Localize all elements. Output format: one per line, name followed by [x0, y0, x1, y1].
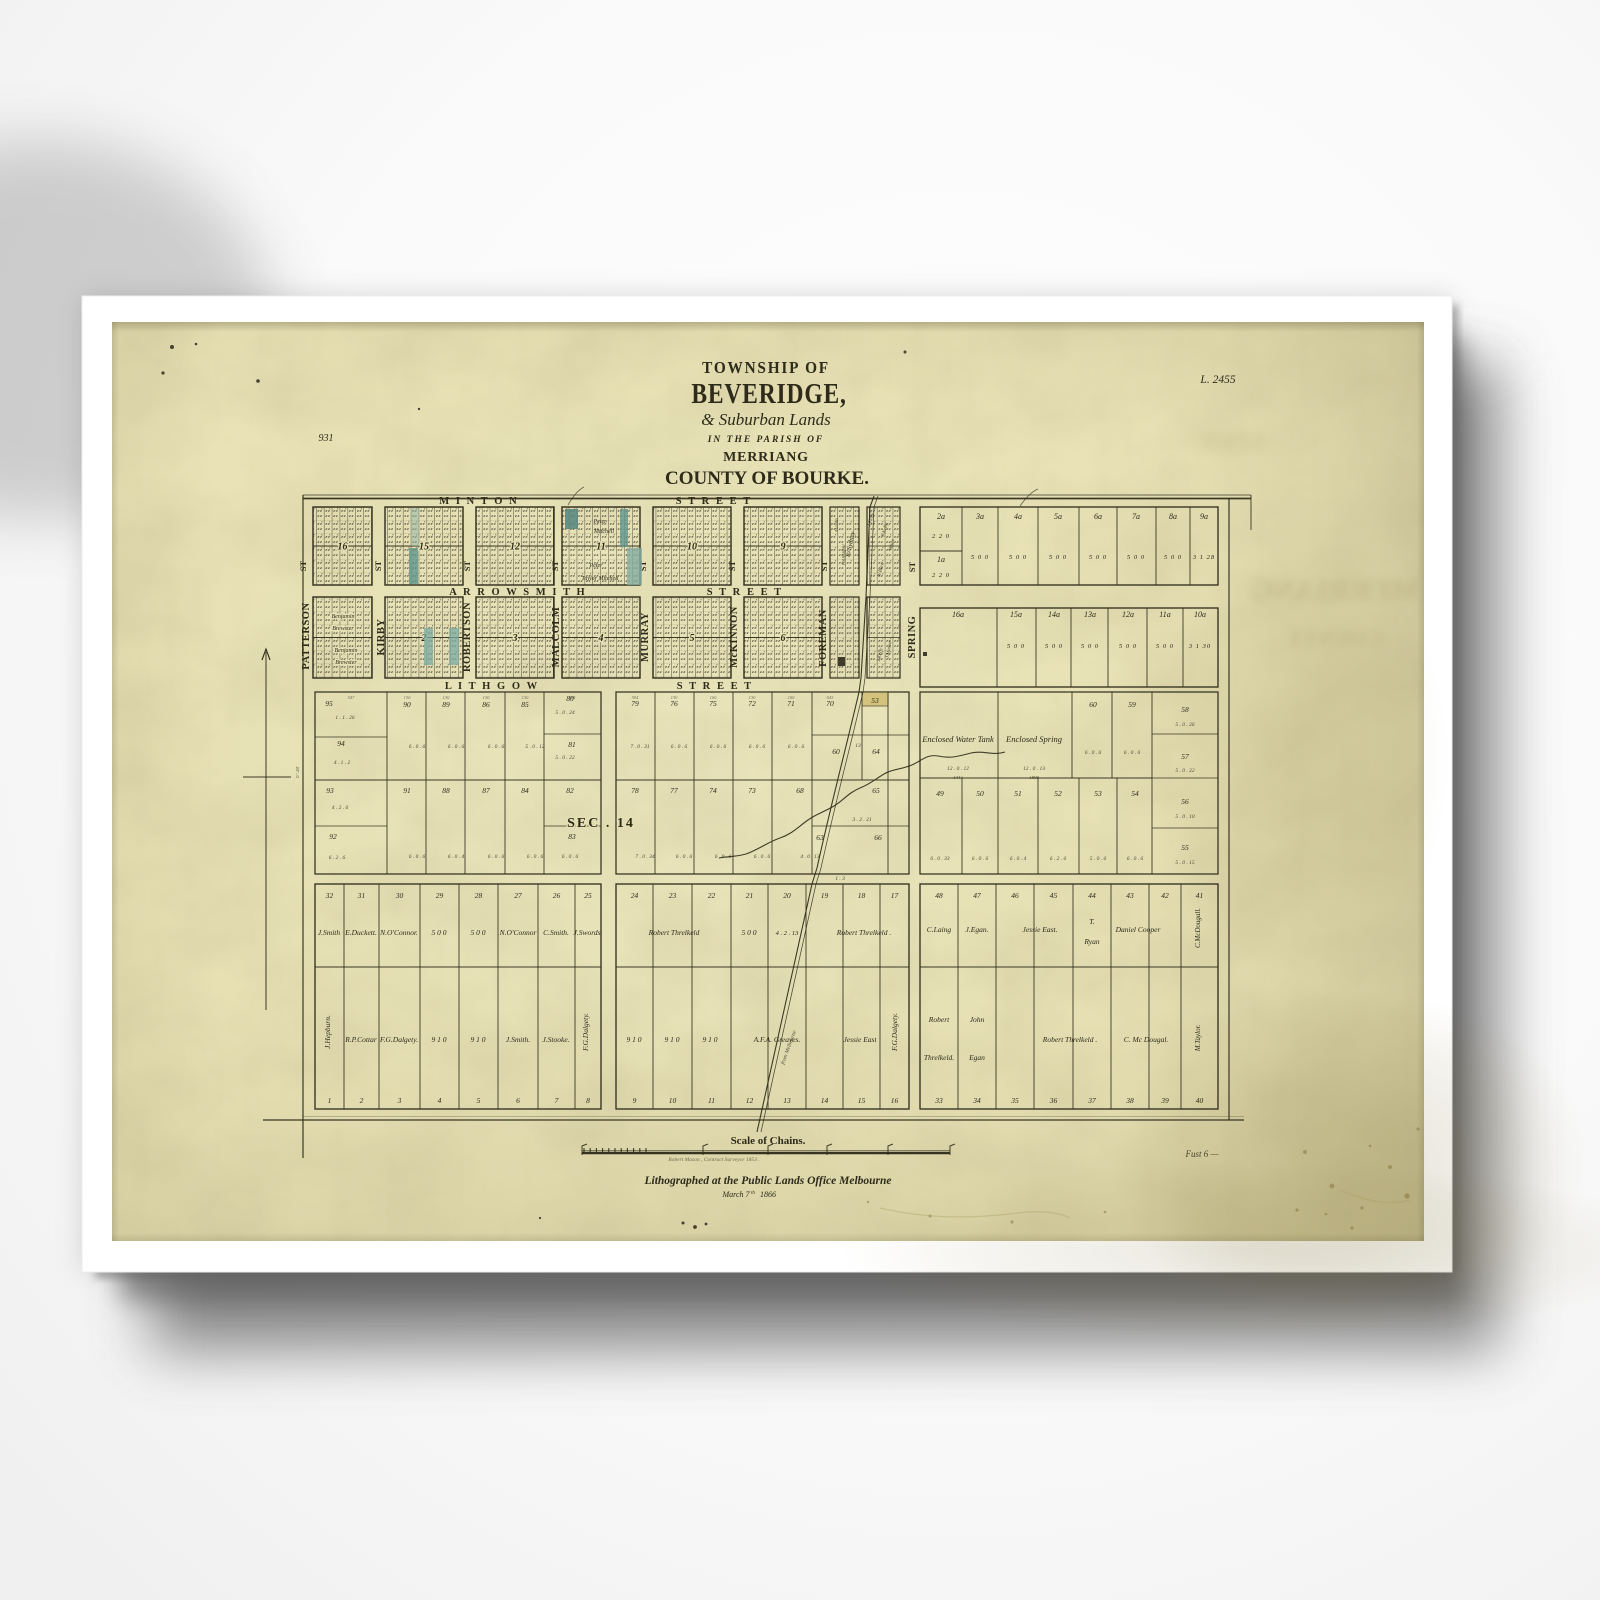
svg-text:MERRIANG: MERRIANG [1250, 574, 1420, 607]
svg-text:7 . 0 . 31: 7 . 0 . 31 [630, 744, 650, 750]
svg-text:6 . 0 . 6: 6 . 0 . 6 [448, 744, 465, 750]
svg-text:2 2 0: 2 2 0 [932, 572, 950, 579]
svg-text:5 . 0 . 15: 5 . 0 . 15 [1175, 860, 1195, 866]
svg-text:75: 75 [709, 699, 717, 708]
svg-text:5 . 0 . 22: 5 . 0 . 22 [1175, 768, 1195, 774]
svg-text:39: 39 [1160, 1096, 1169, 1105]
svg-text:643: 643 [827, 695, 835, 700]
svg-text:29: 29 [436, 891, 444, 900]
svg-text:984: 984 [569, 695, 577, 700]
svg-text:6 . 0 . 6: 6 . 0 . 6 [749, 744, 766, 750]
svg-text:8: 8 [586, 1096, 590, 1105]
svg-text:M.Taylor.: M.Taylor. [1194, 1024, 1202, 1052]
svg-text:130: 130 [671, 695, 679, 700]
svg-text:66: 66 [874, 833, 882, 842]
svg-text:71: 71 [787, 699, 795, 708]
svg-text:54: 54 [1131, 789, 1139, 798]
svg-text:11: 11 [596, 542, 605, 553]
svg-text:3 1 28: 3 1 28 [1192, 554, 1215, 561]
svg-text:ST: ST [907, 561, 917, 572]
svg-text:5: 5 [690, 633, 695, 644]
svg-text:R.P.Cottar: R.P.Cottar [344, 1035, 377, 1044]
svg-text:21: 21 [746, 891, 754, 900]
svg-text:41: 41 [1196, 891, 1204, 900]
svg-text:40: 40 [1196, 1096, 1204, 1105]
svg-text:Benjamin: Benjamin [335, 648, 358, 654]
svg-text:BEVERIDGE,: BEVERIDGE, [691, 378, 846, 409]
svg-text:94: 94 [337, 739, 345, 748]
svg-text:Fust 6 —: Fust 6 — [1184, 1149, 1219, 1159]
svg-text:594: 594 [632, 695, 640, 700]
svg-text:100: 100 [710, 695, 718, 700]
svg-text:13a: 13a [1084, 610, 1096, 619]
svg-text:9: 9 [781, 542, 786, 553]
svg-text:5a: 5a [1054, 512, 1062, 521]
svg-text:E.Duckett.: E.Duckett. [344, 928, 377, 937]
svg-text:6 . 0 . 6: 6 . 0 . 6 [409, 744, 426, 750]
svg-text:8a: 8a [1169, 512, 1177, 521]
svg-text:55: 55 [1181, 843, 1189, 852]
svg-text:Taylor Mitchell: Taylor Mitchell [582, 576, 619, 582]
svg-text:Mason: Mason [835, 518, 840, 533]
svg-text:1: 1 [328, 1096, 332, 1105]
svg-text:2 2 0: 2 2 0 [932, 533, 950, 540]
svg-text:L I T H G O W: L I T H G O W [445, 681, 539, 692]
svg-text:24: 24 [631, 891, 639, 900]
svg-text:MERRIANG: MERRIANG [723, 450, 809, 465]
svg-text:McKINNON: McKINNON [729, 606, 740, 668]
svg-text:16a: 16a [952, 610, 964, 619]
svg-text:14: 14 [821, 1096, 829, 1105]
svg-text:22: 22 [708, 891, 716, 900]
svg-text:6a: 6a [1094, 512, 1102, 521]
svg-text:& Suburban Lands: & Suburban Lands [701, 410, 831, 429]
svg-text:16: 16 [338, 542, 348, 553]
svg-text:4 . 2 . 6: 4 . 2 . 6 [332, 804, 349, 811]
svg-text:58: 58 [1181, 705, 1189, 714]
svg-text:30: 30 [395, 891, 404, 900]
svg-text:68: 68 [796, 786, 804, 795]
svg-text:5 0 0: 5 0 0 [1009, 554, 1027, 561]
svg-text:15: 15 [858, 1096, 866, 1105]
svg-text:9: 9 [633, 1096, 637, 1105]
svg-text:6: 6 [781, 633, 786, 644]
svg-text:10: 10 [687, 542, 697, 553]
svg-text:C.McDougall.: C.McDougall. [1194, 908, 1202, 948]
svg-text:COUNTY: COUNTY [1287, 626, 1382, 651]
svg-text:N.O'Connor: N.O'Connor [499, 928, 537, 937]
svg-text:25: 25 [584, 891, 592, 900]
svg-text:84: 84 [521, 786, 529, 795]
svg-text:J.Swords.: J.Swords. [574, 928, 603, 937]
svg-text:14a: 14a [1048, 610, 1060, 619]
svg-text:4: 4 [598, 633, 604, 644]
svg-text:38: 38 [1125, 1096, 1134, 1105]
svg-text:6 . 2 . 6: 6 . 2 . 6 [329, 855, 346, 861]
svg-text:44: 44 [1088, 891, 1096, 900]
svg-text:3 . 2 . 21: 3 . 2 . 21 [851, 817, 872, 823]
svg-text:47: 47 [973, 891, 981, 900]
svg-text:5 . 0 . 22: 5 . 0 . 22 [555, 755, 575, 761]
svg-text:12a: 12a [1122, 610, 1134, 619]
svg-text:COUNTY OF BOURKE.: COUNTY OF BOURKE. [665, 468, 869, 489]
svg-text:16: 16 [891, 1096, 899, 1105]
svg-text:11a: 11a [1159, 610, 1170, 619]
svg-text:Jessie East.: Jessie East. [1023, 925, 1058, 934]
svg-text:TOWNSHIP OF: TOWNSHIP OF [702, 359, 830, 377]
svg-text:Brewster: Brewster [335, 660, 357, 666]
svg-text:91: 91 [403, 786, 411, 795]
svg-text:64: 64 [872, 747, 880, 756]
svg-text:49: 49 [936, 789, 944, 798]
svg-text:5 . 0 . 10: 5 . 0 . 10 [1175, 814, 1195, 820]
svg-text:T.: T. [1089, 917, 1095, 926]
svg-text:26: 26 [553, 891, 561, 900]
svg-text:92: 92 [329, 832, 337, 841]
svg-text:Robert Threlkeld .: Robert Threlkeld . [1042, 1035, 1098, 1044]
svg-text:ST: ST [298, 560, 308, 571]
svg-text:Lithographed at the Public Lan: Lithographed at the Public Lands Office … [643, 1175, 891, 1187]
svg-text:6 . 0 . 4: 6 . 0 . 4 [1010, 855, 1027, 862]
svg-text:J.Smith.: J.Smith. [506, 1035, 530, 1044]
svg-text:18: 18 [858, 891, 866, 900]
svg-text:7: 7 [555, 1096, 559, 1105]
svg-text:12: 12 [746, 1096, 754, 1105]
svg-text:6 . 0 . 4: 6 . 0 . 4 [448, 853, 465, 860]
svg-text:6°.38': 6°.38' [296, 765, 301, 778]
svg-text:6 . 2 . 6: 6 . 2 . 6 [1050, 856, 1067, 862]
svg-text:53: 53 [871, 696, 879, 705]
svg-text:N.O'Connor.: N.O'Connor. [379, 928, 418, 937]
svg-text:35: 35 [1010, 1096, 1019, 1105]
svg-text:130: 130 [749, 695, 757, 700]
svg-text:SPRING: SPRING [907, 616, 918, 659]
svg-text:3 1 30: 3 1 30 [1188, 643, 1211, 650]
svg-text:MALCOLM: MALCOLM [551, 607, 562, 668]
svg-text:34: 34 [972, 1096, 981, 1105]
svg-text:4 . 2 . 13: 4 . 2 . 13 [776, 930, 800, 937]
svg-text:APRIL: APRIL [1193, 430, 1268, 456]
svg-text:S T R E E T: S T R E E T [677, 681, 753, 692]
svg-text:6 . 0 . 6: 6 . 0 . 6 [1124, 750, 1141, 756]
svg-text:W.Dougall: W.Dougall [842, 544, 847, 566]
svg-text:J.Hepburn.: J.Hepburn. [323, 1015, 332, 1049]
svg-text:F.G.Dalgety.: F.G.Dalgety. [581, 1013, 590, 1052]
svg-text:85: 85 [521, 700, 529, 709]
svg-text:5 0 0: 5 0 0 [1127, 554, 1145, 561]
svg-text:F.G.Dalgety.: F.G.Dalgety. [890, 1013, 899, 1052]
svg-text:12: 12 [510, 542, 520, 553]
svg-text:87: 87 [482, 786, 490, 795]
svg-text:130: 130 [483, 695, 491, 700]
svg-text:46: 46 [1011, 891, 1019, 900]
svg-text:3: 3 [512, 633, 518, 644]
svg-text:1 . 1 . 26: 1 . 1 . 26 [335, 715, 355, 721]
svg-text:32: 32 [325, 891, 334, 900]
svg-text:Robert Threlkeld: Robert Threlkeld [648, 928, 700, 937]
svg-text:19: 19 [821, 891, 829, 900]
svg-text:F.G.Dalgety.: F.G.Dalgety. [379, 1035, 418, 1044]
svg-text:13: 13 [855, 743, 861, 749]
svg-text:Robert Threlkeld .: Robert Threlkeld . [836, 928, 892, 937]
svg-text:6 . 0 . 6: 6 . 0 . 6 [754, 854, 771, 860]
svg-text:5 . 0 . 6: 5 . 0 . 6 [1090, 856, 1107, 862]
svg-text:15a: 15a [1010, 610, 1022, 619]
svg-text:33: 33 [934, 1096, 943, 1105]
svg-text:9 1 0: 9 1 0 [627, 1035, 642, 1044]
svg-text:82: 82 [566, 786, 574, 795]
svg-text:31: 31 [357, 891, 366, 900]
svg-text:65: 65 [872, 786, 880, 795]
svg-text:72: 72 [748, 699, 756, 708]
svg-text:130: 130 [404, 695, 412, 700]
svg-text:3: 3 [397, 1096, 402, 1105]
svg-text:6 . 0 . 33: 6 . 0 . 33 [930, 856, 950, 862]
svg-text:Robert Mason , Contract Survey: Robert Mason , Contract Surveyor 1853 . [667, 1157, 759, 1163]
svg-text:70: 70 [826, 699, 834, 708]
svg-text:5 0 0: 5 0 0 [971, 554, 989, 561]
svg-text:Peter: Peter [589, 563, 604, 569]
svg-text:53: 53 [1094, 789, 1102, 798]
svg-text:6 . 0 . 6: 6 . 0 . 6 [409, 854, 426, 860]
svg-text:5 . 0 . 12: 5 . 0 . 12 [525, 744, 545, 750]
svg-text:45: 45 [1050, 891, 1058, 900]
svg-text:5 0 0: 5 0 0 [1164, 554, 1182, 561]
svg-text:ST: ST [550, 560, 560, 571]
svg-text:KIRBY: KIRBY [376, 619, 387, 656]
svg-text:6 . 0 . 6: 6 . 0 . 6 [562, 854, 579, 860]
svg-text:100: 100 [788, 695, 796, 700]
svg-text:ST: ST [727, 560, 737, 571]
svg-text:Egan: Egan [968, 1053, 985, 1062]
svg-text:42: 42 [1161, 891, 1169, 900]
svg-text:5 . 0 . 26: 5 . 0 . 26 [1175, 722, 1195, 728]
svg-text:9 1 0: 9 1 0 [432, 1035, 447, 1044]
svg-text:5 0 0: 5 0 0 [1081, 643, 1099, 650]
svg-text:27: 27 [514, 891, 522, 900]
svg-text:6: 6 [516, 1096, 520, 1105]
svg-text:ST: ST [462, 560, 472, 571]
svg-text:1866: 1866 [760, 1190, 776, 1199]
svg-text:28: 28 [475, 891, 483, 900]
svg-text:43: 43 [1126, 891, 1134, 900]
svg-text:60: 60 [832, 747, 840, 756]
svg-text:931: 931 [319, 433, 334, 444]
svg-text:6 . 0 . 6: 6 . 0 . 6 [676, 854, 693, 860]
svg-text:5 0 0: 5 0 0 [471, 928, 486, 937]
svg-text:Scale of Chains.: Scale of Chains. [731, 1135, 806, 1147]
svg-text:March 7: March 7 [721, 1190, 750, 1199]
svg-text:7 . 0 . 34: 7 . 0 . 34 [635, 853, 655, 860]
svg-text:17: 17 [891, 891, 899, 900]
svg-text:20: 20 [783, 891, 791, 900]
svg-text:5 0 0: 5 0 0 [1119, 643, 1137, 650]
svg-text:51: 51 [1014, 789, 1022, 798]
svg-text:4 . 1 . 2: 4 . 1 . 2 [334, 759, 351, 766]
svg-text:86: 86 [482, 700, 490, 709]
svg-text:6 . 0 . 6: 6 . 0 . 6 [527, 854, 544, 860]
svg-text:ROBERTSON: ROBERTSON [462, 602, 473, 672]
svg-text:PATTERSON: PATTERSON [301, 602, 312, 669]
svg-text:Jessie East: Jessie East [843, 1035, 877, 1044]
svg-text:th: th [751, 1191, 755, 1196]
svg-text:Robert: Robert [928, 1015, 950, 1024]
svg-text:C.Smith.: C.Smith. [543, 928, 569, 937]
svg-text:56: 56 [1181, 797, 1189, 806]
svg-text:81: 81 [568, 740, 576, 749]
svg-text:1a: 1a [937, 555, 945, 564]
svg-text:78: 78 [631, 786, 639, 795]
svg-text:Ryan: Ryan [1083, 937, 1100, 946]
svg-text:Benjamin: Benjamin [332, 614, 355, 620]
svg-text:J.Egan.: J.Egan. [966, 925, 989, 934]
svg-text:Enclosed Water Tank: Enclosed Water Tank [921, 734, 994, 744]
svg-text:10a: 10a [1194, 610, 1206, 619]
svg-text:11: 11 [708, 1096, 715, 1105]
svg-text:23: 23 [669, 891, 677, 900]
svg-text:Brewster: Brewster [332, 626, 354, 632]
svg-text:SEC . 14: SEC . 14 [567, 816, 635, 831]
svg-text:1447: 1447 [953, 776, 964, 781]
svg-text:MURRAY: MURRAY [640, 612, 651, 662]
svg-text:John: John [970, 1015, 985, 1024]
svg-text:ST: ST [819, 560, 829, 571]
svg-text:89: 89 [442, 700, 450, 709]
svg-text:FOREMAN: FOREMAN [818, 609, 829, 667]
svg-text:6 . 0 . 6: 6 . 0 . 6 [488, 744, 505, 750]
svg-text:12 . 0 . 12: 12 . 0 . 12 [947, 766, 969, 772]
svg-text:3a: 3a [975, 512, 984, 521]
svg-text:5 0 0: 5 0 0 [1089, 554, 1107, 561]
svg-text:9 1 0: 9 1 0 [471, 1035, 486, 1044]
svg-text:6 . 0 . 6: 6 . 0 . 6 [710, 744, 727, 750]
svg-text:M I N T O N: M I N T O N [439, 496, 519, 507]
svg-text:9 1 0: 9 1 0 [665, 1035, 680, 1044]
svg-text:6 . 0 . 6: 6 . 0 . 6 [1085, 750, 1102, 756]
svg-text:L. 2455: L. 2455 [1199, 374, 1235, 386]
svg-text:5 0 0: 5 0 0 [1156, 643, 1174, 650]
svg-text:Mitchell: Mitchell [593, 529, 614, 535]
svg-text:10: 10 [669, 1096, 677, 1105]
svg-text:15: 15 [419, 542, 429, 553]
svg-text:6 . 0 . 6: 6 . 0 . 6 [488, 854, 505, 860]
svg-text:130: 130 [522, 695, 530, 700]
svg-text:4a: 4a [1014, 512, 1022, 521]
svg-text:77: 77 [670, 786, 678, 795]
svg-text:7a: 7a [1132, 512, 1140, 521]
svg-text:57: 57 [1181, 752, 1189, 761]
svg-text:9a: 9a [1200, 512, 1208, 521]
svg-text:Threlkeld.: Threlkeld. [924, 1053, 954, 1062]
svg-text:50: 50 [976, 789, 984, 798]
svg-text:59: 59 [1128, 700, 1136, 709]
svg-text:48: 48 [935, 891, 943, 900]
svg-text:36: 36 [1049, 1096, 1058, 1105]
svg-text:4: 4 [438, 1096, 442, 1105]
svg-text:6 . 0 . 6: 6 . 0 . 6 [1127, 856, 1144, 862]
svg-text:9 1 0: 9 1 0 [703, 1035, 718, 1044]
svg-text:ST: ST [373, 560, 383, 571]
svg-text:5 0 0: 5 0 0 [432, 928, 447, 937]
svg-text:79: 79 [631, 699, 639, 708]
svg-text:5 0 0: 5 0 0 [1049, 554, 1067, 561]
svg-text:37: 37 [1087, 1096, 1096, 1105]
svg-text:130: 130 [443, 695, 451, 700]
svg-text:C. Mc Dougal.: C. Mc Dougal. [1124, 1035, 1169, 1044]
svg-text:12 . 0 . 13: 12 . 0 . 13 [1023, 766, 1045, 772]
svg-text:IN THE PARISH OF: IN THE PARISH OF [707, 435, 825, 445]
svg-text:6 . 0 . 6: 6 . 0 . 6 [671, 744, 688, 750]
svg-text:13: 13 [783, 1096, 791, 1105]
svg-text:73: 73 [748, 786, 756, 795]
svg-text:5 0 0: 5 0 0 [742, 928, 757, 937]
svg-text:1 . 3: 1 . 3 [835, 876, 845, 882]
svg-text:60: 60 [1089, 700, 1097, 709]
svg-text:93: 93 [326, 786, 334, 795]
svg-text:95: 95 [325, 699, 333, 708]
svg-text:52: 52 [1054, 789, 1062, 798]
svg-text:J.Smith: J.Smith [318, 928, 341, 937]
svg-text:4 . 0 . 13: 4 . 0 . 13 [800, 853, 820, 860]
svg-text:A.F.A. Greaves.: A.F.A. Greaves. [753, 1035, 801, 1044]
svg-text:J.Stooke.: J.Stooke. [542, 1035, 569, 1044]
svg-text:83: 83 [568, 832, 576, 841]
svg-text:5 . 0 . 24: 5 . 0 . 24 [555, 709, 575, 716]
svg-text:5: 5 [477, 1096, 481, 1105]
svg-text:6 . 0 . 6: 6 . 0 . 6 [788, 744, 805, 750]
svg-text:Peter: Peter [593, 519, 608, 525]
svg-text:5 0 0: 5 0 0 [1007, 643, 1025, 650]
svg-text:S T R E E T: S T R E E T [676, 496, 752, 507]
svg-text:2a: 2a [937, 512, 945, 521]
svg-text:6 . 0 . 6: 6 . 0 . 6 [972, 856, 989, 862]
svg-text:90: 90 [403, 700, 411, 709]
svg-text:76: 76 [670, 699, 678, 708]
svg-text:2: 2 [360, 1096, 364, 1105]
svg-text:5 0 0: 5 0 0 [1045, 643, 1063, 650]
svg-text:Enclosed Spring: Enclosed Spring [1005, 734, 1062, 744]
svg-text:1899: 1899 [1029, 776, 1040, 781]
svg-text:88: 88 [442, 786, 450, 795]
svg-text:Daniel Cooper: Daniel Cooper [1115, 925, 1161, 934]
svg-text:74: 74 [709, 786, 717, 795]
svg-text:C.Laing: C.Laing [927, 925, 952, 934]
svg-text:547: 547 [348, 695, 356, 700]
